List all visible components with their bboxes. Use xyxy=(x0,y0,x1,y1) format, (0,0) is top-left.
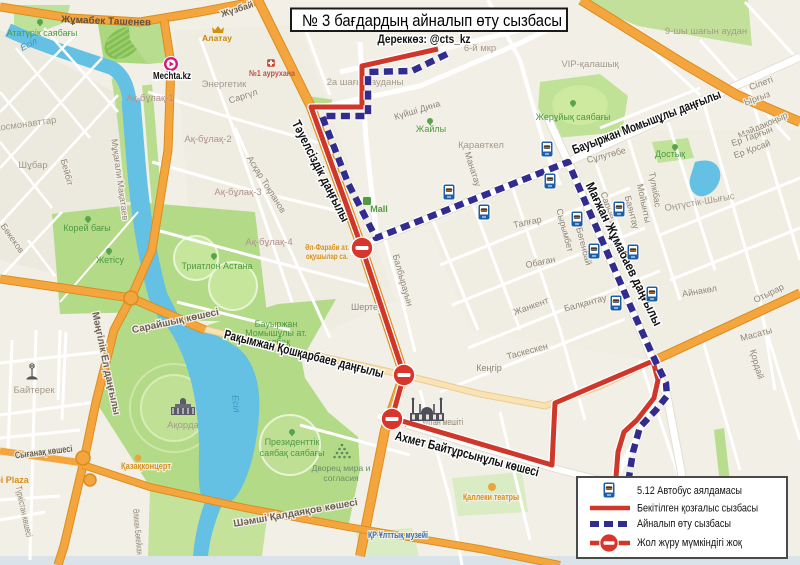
svg-text:Жол жүру мүмкіндігі жоқ: Жол жүру мүмкіндігі жоқ xyxy=(637,537,742,549)
svg-text:ҚР Ұлттық музейі: ҚР Ұлттық музейі xyxy=(368,530,428,540)
svg-text:Корей бағы: Корей бағы xyxy=(63,223,111,233)
svg-text:Айналып өту сызбасы: Айналып өту сызбасы xyxy=(637,518,731,530)
svg-text:Триатлон Астана: Триатлон Астана xyxy=(181,261,252,271)
svg-text:Байтерек: Байтерек xyxy=(13,385,55,396)
svg-text:Mall: Mall xyxy=(370,204,388,214)
svg-text:Алатау: Алатау xyxy=(202,33,232,43)
svg-text:Қазақконцерт: Қазақконцерт xyxy=(121,461,171,471)
svg-text:Кеңгір: Кеңгір xyxy=(476,363,502,373)
svg-text:9-шы шағын аудан: 9-шы шағын аудан xyxy=(665,26,747,37)
svg-text:Дворец мира и: Дворец мира и xyxy=(312,463,371,473)
svg-text:5.12 Автобус аялдамасы: 5.12 Автобус аялдамасы xyxy=(637,485,742,497)
svg-text:Бекітілген қозғалыс сызбасы: Бекітілген қозғалыс сызбасы xyxy=(637,503,758,515)
svg-text:Ақ-бұлақ-3: Ақ-бұлақ-3 xyxy=(214,187,261,198)
svg-text:Достық: Достық xyxy=(655,149,685,159)
svg-text:Жетісу: Жетісу xyxy=(96,255,125,265)
svg-text:Ақ-бұлақ-4: Ақ-бұлақ-4 xyxy=(245,237,292,248)
svg-text:Жерұйық саябағы: Жерұйық саябағы xyxy=(536,112,611,122)
svg-text:VIP-қалашық: VIP-қалашық xyxy=(561,59,619,70)
svg-text:Қаллеки театры: Қаллеки театры xyxy=(463,492,519,502)
svg-text:Mechta.kz: Mechta.kz xyxy=(153,71,191,82)
svg-text:Жайлы: Жайлы xyxy=(416,124,446,134)
svg-text:№ 3 бағдардың айналып өту сызб: № 3 бағдардың айналып өту сызбасы xyxy=(302,12,562,30)
svg-text:оқушылар са.: оқушылар са. xyxy=(306,251,348,261)
svg-text:Қараөткел: Қараөткел xyxy=(458,140,504,151)
svg-text:Президенттік: Президенттік xyxy=(265,437,320,447)
svg-text:Ақ-бұлақ-1: Ақ-бұлақ-1 xyxy=(126,93,173,104)
svg-text:Есіл: Есіл xyxy=(230,395,241,413)
svg-text:Ақ-бұлақ-2: Ақ-бұлақ-2 xyxy=(184,134,231,145)
svg-text:№1 аурухана: №1 аурухана xyxy=(249,68,295,78)
svg-text:Дереккөз: @cts_kz: Дереккөз: @cts_kz xyxy=(378,34,471,46)
svg-text:Ататүрік саябағы: Ататүрік саябағы xyxy=(7,28,78,38)
svg-text:Энергетик: Энергетик xyxy=(202,79,248,90)
svg-text:саябақ саябағы: саябақ саябағы xyxy=(260,448,325,458)
svg-text:Шұбар: Шұбар xyxy=(18,160,47,171)
svg-text:Ақорда: Ақорда xyxy=(167,420,199,431)
svg-text:согласия: согласия xyxy=(323,473,359,483)
svg-text:bi Plaza: bi Plaza xyxy=(0,475,30,485)
